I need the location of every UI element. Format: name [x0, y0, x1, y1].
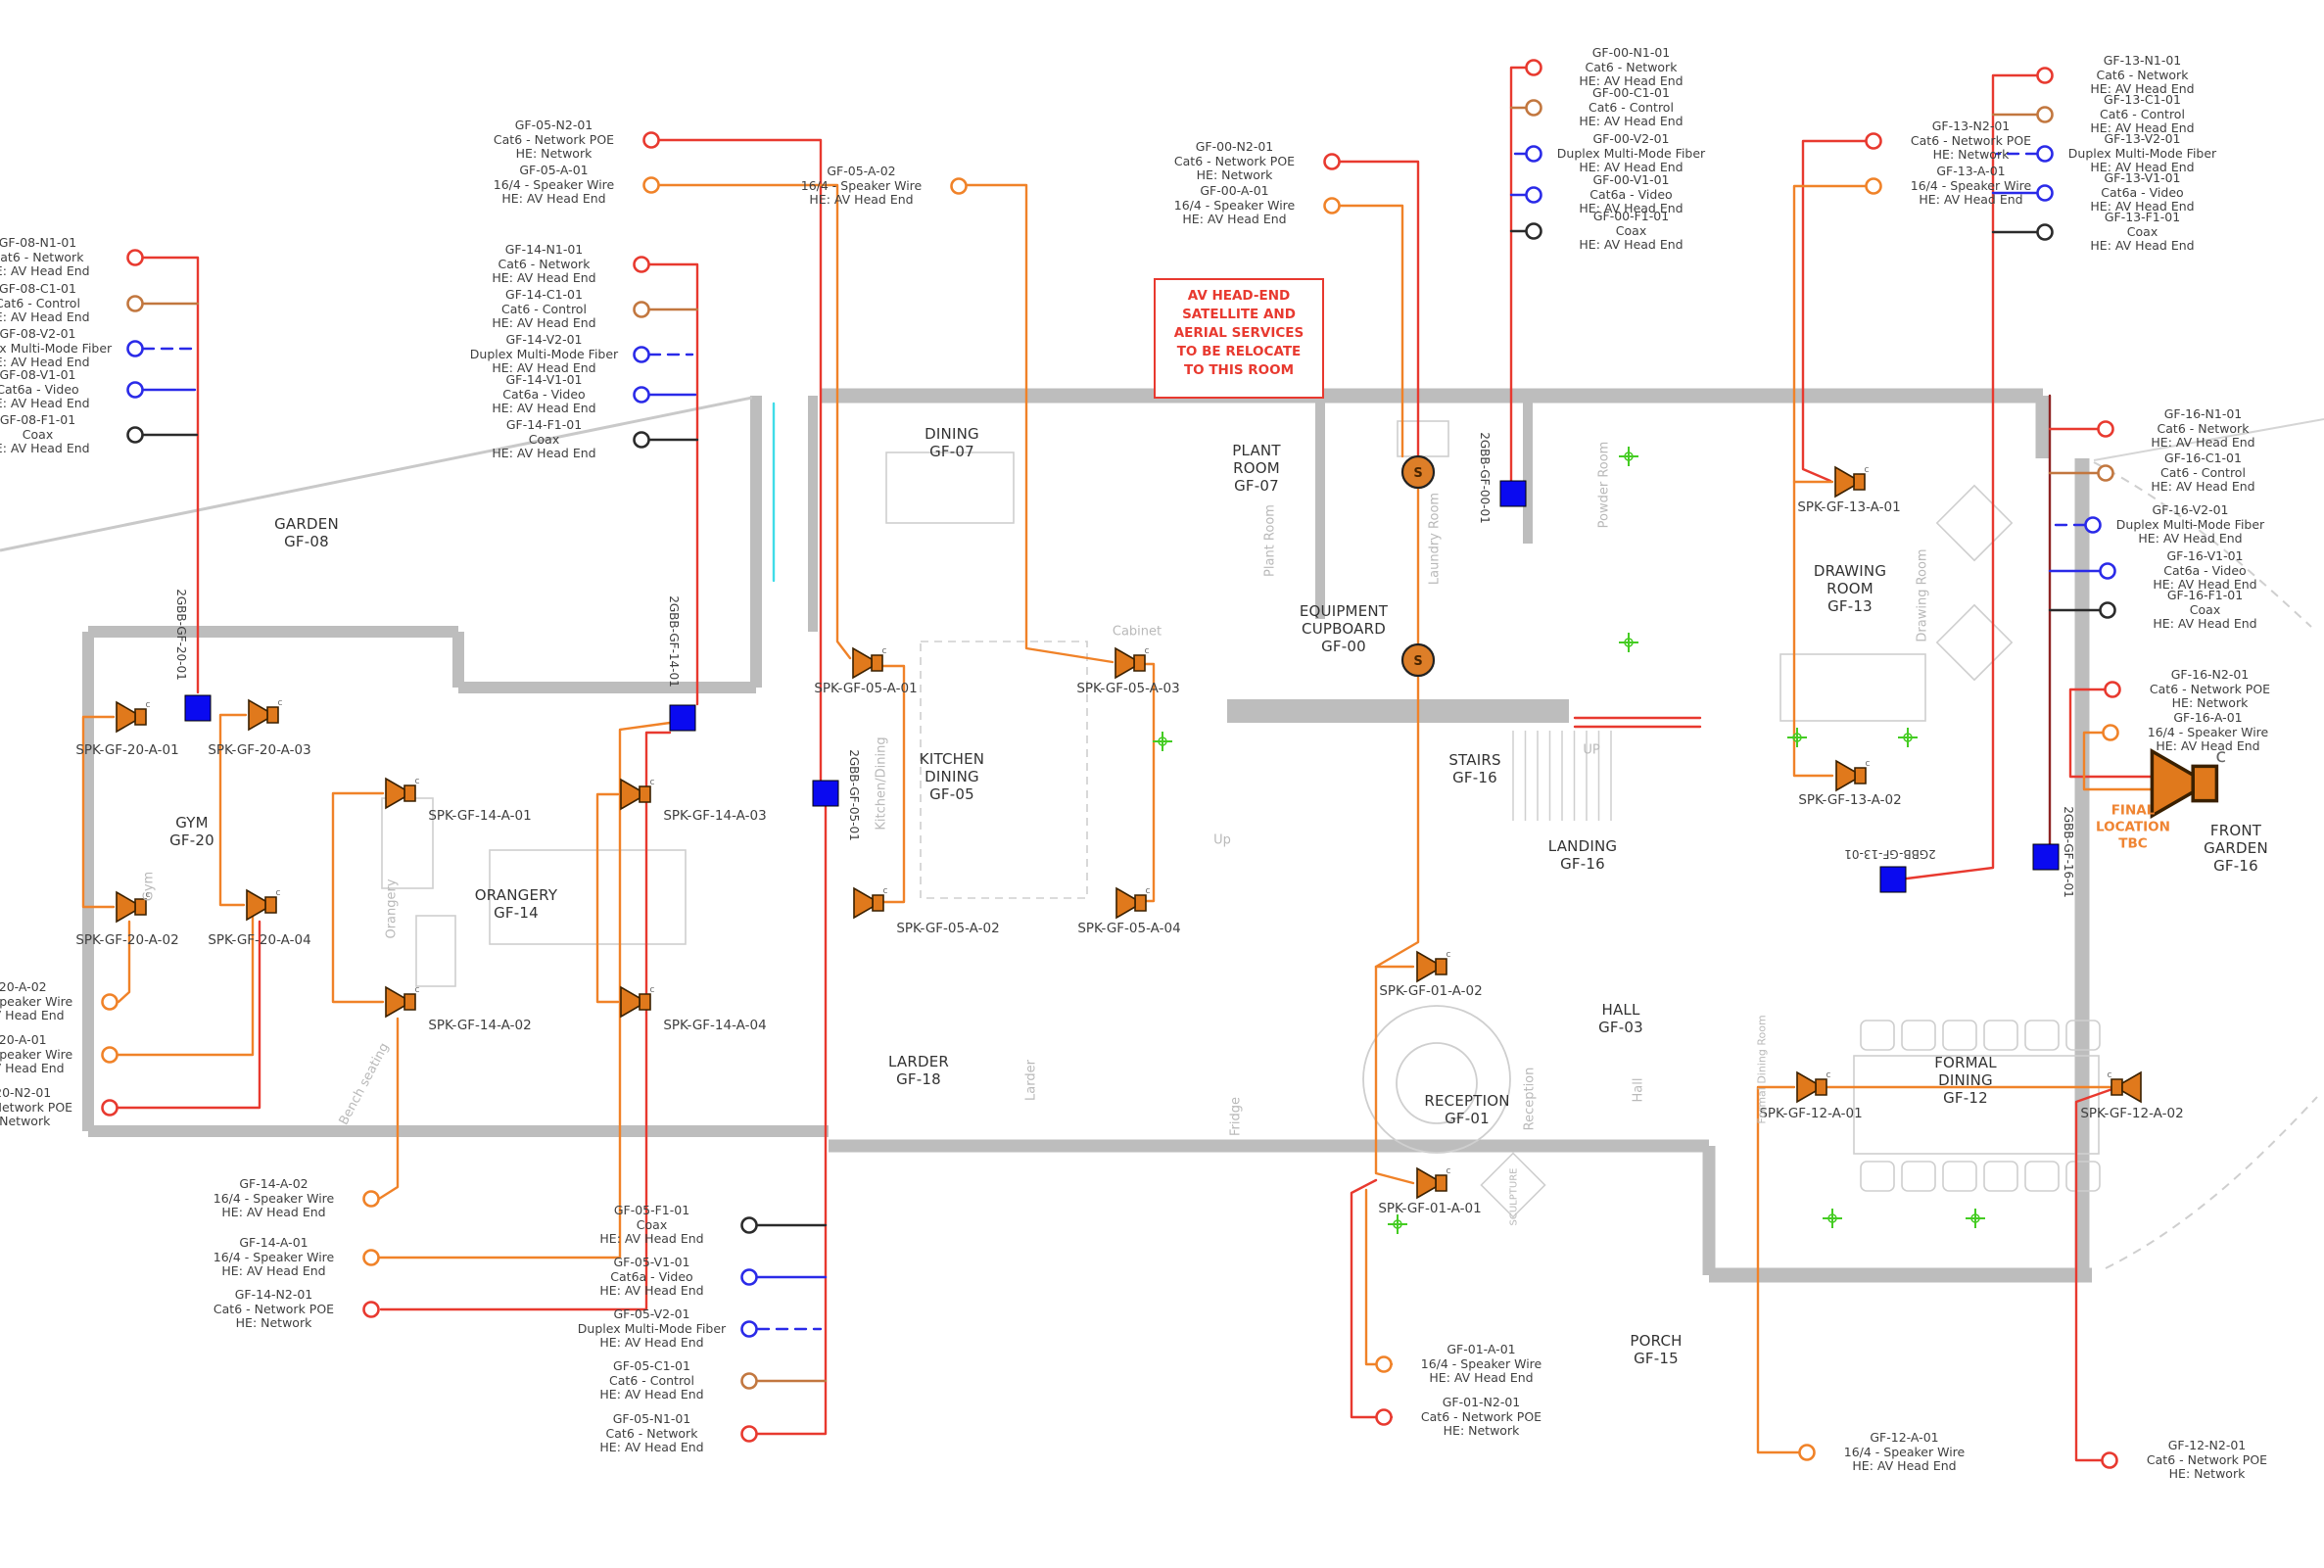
speaker-label: SPK-GF-14-A-02	[428, 1018, 531, 1033]
cable-label-dest: HE: AV Head End	[458, 271, 630, 286]
cable-label: GF-00-N1-01Cat6 - NetworkHE: AV Head End	[1545, 46, 1717, 89]
cable-label-id: GF-00-V2-01	[1545, 132, 1717, 147]
cable-label-type: Duplex Multi-Mode Fiber	[458, 348, 630, 362]
cable-label-type: Duplex Multi-Mode Fiber	[566, 1322, 737, 1337]
room-label-line: FRONT	[2153, 822, 2319, 839]
panel-label: 2GBB-GF-05-01	[847, 749, 861, 841]
cable-label-dest: HE: AV Head End	[1149, 213, 1320, 227]
cable-label-dest: HE: AV Head End	[0, 1009, 98, 1023]
cable-label-type: Duplex Multi-Mode Fiber	[0, 342, 123, 356]
cable-label-id: GF-00-F1-01	[1545, 210, 1717, 224]
room-label-line: DINING	[869, 768, 1035, 785]
plan-text: Laundry Room	[1428, 493, 1443, 585]
relocation-note-line: TO THIS ROOM	[1156, 361, 1322, 380]
cable-label-type: Cat6 - Network	[0, 251, 123, 265]
room-label-line: GF-13	[1767, 597, 1933, 615]
cable-label: GF-05-V2-01Duplex Multi-Mode FiberHE: AV…	[566, 1307, 737, 1351]
cable-label-type: 16/4 - Speaker Wire	[1396, 1357, 1567, 1372]
cable-label-id: GF-13-F1-01	[2057, 211, 2228, 225]
cable-label-dest: HE: AV Head End	[1819, 1459, 1990, 1474]
cable-label: GF-16-V1-01Cat6a - VideoHE: AV Head End	[2119, 549, 2291, 593]
room-label: ORANGERYGF-14	[433, 886, 599, 922]
cable-label-id: GF-05-A-02	[776, 165, 947, 179]
room-label-line: CUPBOARD	[1260, 620, 1427, 638]
speaker-label: SPK-GF-14-A-01	[428, 808, 531, 824]
cable-label-type: Cat6 - Network POE	[0, 1101, 98, 1116]
cable-label: GF-05-N2-01Cat6 - Network POEHE: Network	[468, 119, 640, 162]
room-label-line: DRAWING	[1767, 562, 1933, 580]
room-label-line: GF-18	[835, 1070, 1002, 1088]
room-label-line: GF-00	[1260, 638, 1427, 655]
cable-label-type: Cat6 - Network POE	[2124, 683, 2296, 697]
cable-label: GF-16-C1-01Cat6 - ControlHE: AV Head End	[2117, 451, 2289, 495]
speaker-label: SPK-GF-20-A-02	[75, 932, 178, 948]
cable-label-type: 16/4 - Speaker Wire	[188, 1251, 359, 1265]
cable-label: GF-05-F1-01CoaxHE: AV Head End	[566, 1204, 737, 1247]
cable-label-dest: HE: AV Head End	[566, 1441, 737, 1455]
cable-label-dest: HE: AV Head End	[1885, 193, 2057, 208]
cable-label-type: Cat6 - Control	[2117, 466, 2289, 481]
cable-label-id: GF-14-V2-01	[458, 333, 630, 348]
plan-text: Hall	[1632, 1078, 1646, 1103]
plan-text: SCULPTURE	[1509, 1168, 1520, 1226]
cable-label-type: Cat6 - Network POE	[2121, 1453, 2293, 1468]
room-label-line: GF-05	[869, 785, 1035, 803]
plan-text: Formal Dining Room	[1756, 1015, 1769, 1123]
cable-label: GF-13-N2-01Cat6 - Network POEHE: Network	[1885, 119, 2057, 163]
cable-label-dest: HE: AV Head End	[458, 402, 630, 416]
cable-label: GF-16-N2-01Cat6 - Network POEHE: Network	[2124, 668, 2296, 711]
cable-label-dest: HE: AV Head End	[2117, 480, 2289, 495]
cable-label: GF-16-N1-01Cat6 - NetworkHE: AV Head End	[2117, 407, 2289, 451]
cable-label-type: 16/4 - Speaker Wire	[2122, 726, 2294, 740]
room-label: LANDINGGF-16	[1499, 837, 1666, 873]
cable-label-id: GF-20-A-01	[0, 1033, 98, 1048]
cable-label: GF-14-A-0216/4 - Speaker WireHE: AV Head…	[188, 1177, 359, 1220]
cable-label-dest: HE: AV Head End	[0, 264, 123, 279]
room-label-line: GF-07	[1173, 477, 1340, 495]
cable-label-type: Cat6 - Control	[458, 303, 630, 317]
room-label: STAIRSGF-16	[1392, 751, 1558, 786]
cable-label-id: GF-01-N2-01	[1396, 1396, 1567, 1410]
panel-label: 2GBB-GF-16-01	[2062, 806, 2075, 898]
room-label: FORMALDININGGF-12	[1882, 1054, 2049, 1107]
cable-label: GF-14-C1-01Cat6 - ControlHE: AV Head End	[458, 288, 630, 331]
speaker-label: SPK-GF-20-A-01	[75, 742, 178, 758]
panel-label: 2GBB-GF-00-01	[1478, 432, 1492, 524]
panel-label: 2GBB-GF-14-01	[667, 595, 681, 688]
cable-label-id: GF-05-V2-01	[566, 1307, 737, 1322]
final-location-line: FINAL	[2096, 803, 2170, 820]
cable-label-dest: HE: AV Head End	[1545, 238, 1717, 253]
room-label-line: GYM	[109, 814, 275, 832]
cable-label-type: Cat6 - Control	[0, 297, 123, 311]
cable-label-id: GF-05-A-01	[468, 164, 640, 178]
cable-label-dest: HE: AV Head End	[0, 310, 123, 325]
speaker-label: SPK-GF-01-A-01	[1378, 1201, 1481, 1216]
room-label: GARDENGF-08	[223, 515, 390, 550]
cable-label: GF-08-N1-01Cat6 - NetworkHE: AV Head End	[0, 236, 123, 279]
cable-label-id: GF-13-V2-01	[2057, 132, 2228, 147]
room-label-line: PLANT	[1173, 442, 1340, 459]
cable-label: GF-14-V2-01Duplex Multi-Mode FiberHE: AV…	[458, 333, 630, 376]
cable-label: GF-13-N1-01Cat6 - NetworkHE: AV Head End	[2057, 54, 2228, 97]
plan-text: Plant Room	[1263, 504, 1278, 577]
panel-label: 2GBB-GF-20-01	[174, 589, 188, 681]
cable-label-dest: HE: AV Head End	[2105, 532, 2276, 546]
cable-label-id: GF-08-F1-01	[0, 413, 123, 428]
cable-label: GF-13-C1-01Cat6 - ControlHE: AV Head End	[2057, 93, 2228, 136]
speaker-label: SPK-GF-12-A-01	[1759, 1106, 1862, 1121]
cable-label-dest: HE: AV Head End	[566, 1232, 737, 1247]
cable-label-type: Cat6 - Network POE	[1149, 155, 1320, 169]
cable-label-type: Cat6a - Video	[458, 388, 630, 403]
room-label-line: GF-16	[1499, 855, 1666, 873]
cable-label-dest: HE: AV Head End	[0, 442, 123, 456]
cable-label-id: GF-16-N2-01	[2124, 668, 2296, 683]
room-label-line: GARDEN	[223, 515, 390, 533]
room-label-line: KITCHEN	[869, 750, 1035, 768]
room-label: DININGGF-07	[869, 425, 1035, 460]
plan-text: Kitchen/Dining	[875, 736, 889, 830]
cable-label-type: Cat6 - Control	[566, 1374, 737, 1389]
cable-label: GF-13-V1-01Cat6a - VideoHE: AV Head End	[2057, 171, 2228, 214]
cable-label-id: GF-00-V1-01	[1545, 173, 1717, 188]
cable-label-dest: HE: AV Head End	[468, 192, 640, 207]
speaker-label: SPK-GF-13-A-01	[1797, 499, 1900, 515]
cable-label-type: 16/4 - Speaker Wire	[1819, 1446, 1990, 1460]
cable-label: GF-05-A-0216/4 - Speaker WireHE: AV Head…	[776, 165, 947, 208]
cable-label-id: GF-12-N2-01	[2121, 1439, 2293, 1453]
cable-label-dest: HE: AV Head End	[458, 316, 630, 331]
cable-label-type: Cat6a - Video	[1545, 188, 1717, 203]
cable-label-id: GF-16-C1-01	[2117, 451, 2289, 466]
cable-label: GF-16-A-0116/4 - Speaker WireHE: AV Head…	[2122, 711, 2294, 754]
room-label-line: GF-20	[109, 832, 275, 849]
room-label-line: DINING	[869, 425, 1035, 443]
cable-label-id: GF-00-C1-01	[1545, 86, 1717, 101]
cable-label: GF-08-V2-01Duplex Multi-Mode FiberHE: AV…	[0, 327, 123, 370]
room-label-line: ROOM	[1173, 459, 1340, 477]
final-location-line: LOCATION	[2096, 820, 2170, 836]
cable-label: GF-00-N2-01Cat6 - Network POEHE: Network	[1149, 140, 1320, 183]
room-label: DRAWINGROOMGF-13	[1767, 562, 1933, 615]
cable-label-dest: HE: Network	[468, 147, 640, 162]
cable-label-type: Coax	[2057, 225, 2228, 240]
room-label: GYMGF-20	[109, 814, 275, 849]
cable-label-id: GF-08-V1-01	[0, 368, 123, 383]
cable-label-type: Cat6 - Control	[2057, 108, 2228, 122]
cable-label-type: Cat6a - Video	[566, 1270, 737, 1285]
room-label-line: HALL	[1538, 1001, 1704, 1019]
cable-label-type: 16/4 - Speaker Wire	[468, 178, 640, 193]
cable-label-dest: HE: Network	[2124, 696, 2296, 711]
cable-label: GF-05-V1-01Cat6a - VideoHE: AV Head End	[566, 1256, 737, 1299]
room-label-line: LANDING	[1499, 837, 1666, 855]
label-overlay: GF-08-N1-01Cat6 - NetworkHE: AV Head End…	[0, 0, 2324, 1568]
panel-label: 2GBB-GF-13-01	[1844, 847, 1936, 861]
cable-label-dest: HE: Network	[188, 1316, 359, 1331]
cable-label-type: Coax	[458, 433, 630, 448]
cable-label-type: Cat6 - Network POE	[1885, 134, 2057, 149]
cable-label-id: GF-13-A-01	[1885, 165, 2057, 179]
cable-label: GF-20-A-0116/4 - Speaker WireHE: AV Head…	[0, 1033, 98, 1076]
cable-label-id: GF-20-A-02	[0, 980, 98, 995]
cable-label: GF-14-N2-01Cat6 - Network POEHE: Network	[188, 1288, 359, 1331]
cable-label: GF-20-A-0216/4 - Speaker WireHE: AV Head…	[0, 980, 98, 1023]
room-label-line: STAIRS	[1392, 751, 1558, 769]
room-label: KITCHENDININGGF-05	[869, 750, 1035, 803]
room-label-line: GARDEN	[2153, 839, 2319, 857]
cable-label-type: Cat6a - Video	[0, 383, 123, 398]
cable-label-id: GF-08-C1-01	[0, 282, 123, 297]
cable-label-id: GF-14-N2-01	[188, 1288, 359, 1303]
speaker-label: SPK-GF-13-A-02	[1798, 792, 1901, 808]
cable-label-id: GF-01-A-01	[1396, 1343, 1567, 1357]
cable-label-dest: HE: AV Head End	[2122, 739, 2294, 754]
cable-label-type: Duplex Multi-Mode Fiber	[2105, 518, 2276, 533]
cable-label-type: Coax	[566, 1218, 737, 1233]
cable-label-id: GF-00-A-01	[1149, 184, 1320, 199]
cable-label-id: GF-16-V1-01	[2119, 549, 2291, 564]
plan-text: Up	[1213, 833, 1231, 848]
cable-label: GF-05-N1-01Cat6 - NetworkHE: AV Head End	[566, 1412, 737, 1455]
relocation-note-line: SATELLITE AND	[1156, 306, 1322, 324]
room-label-line: GF-14	[433, 904, 599, 922]
cable-label: GF-00-V2-01Duplex Multi-Mode FiberHE: AV…	[1545, 132, 1717, 175]
room-label: LARDERGF-18	[835, 1053, 1002, 1088]
cable-label-id: GF-14-F1-01	[458, 418, 630, 433]
speaker-label: SPK-GF-05-A-03	[1076, 681, 1179, 696]
cable-label-id: GF-13-N1-01	[2057, 54, 2228, 69]
room-label: EQUIPMENTCUPBOARDGF-00	[1260, 602, 1427, 655]
plan-text: UP	[1583, 743, 1599, 758]
cable-label-dest: HE: AV Head End	[566, 1388, 737, 1402]
cable-label-dest: HE: Network	[1885, 148, 2057, 163]
cable-label-id: GF-05-V1-01	[566, 1256, 737, 1270]
plan-text: Larder	[1024, 1060, 1039, 1101]
cable-label-type: Cat6 - Network	[566, 1427, 737, 1442]
cable-label-dest: HE: AV Head End	[458, 447, 630, 461]
cable-label-dest: HE: AV Head End	[2057, 239, 2228, 254]
relocation-note-line: TO BE RELOCATE	[1156, 343, 1322, 361]
cable-label-type: Cat6 - Network POE	[188, 1303, 359, 1317]
relocation-note: AV HEAD-ENDSATELLITE ANDAERIAL SERVICEST…	[1154, 278, 1324, 399]
cable-label-id: GF-14-A-02	[188, 1177, 359, 1192]
cable-label-id: GF-14-V1-01	[458, 373, 630, 388]
room-label-line: LARDER	[835, 1053, 1002, 1070]
room-label-line: DINING	[1882, 1071, 2049, 1089]
cable-label-type: 16/4 - Speaker Wire	[1885, 179, 2057, 194]
cable-label-dest: HE: AV Head End	[188, 1264, 359, 1279]
cable-label-type: Coax	[1545, 224, 1717, 239]
cable-label-type: Cat6a - Video	[2119, 564, 2291, 579]
final-location-line: TBC	[2096, 836, 2170, 853]
speaker-label: SPK-GF-14-A-04	[663, 1018, 766, 1033]
cable-label-type: Cat6a - Video	[2057, 186, 2228, 201]
cable-label: GF-01-A-0116/4 - Speaker WireHE: AV Head…	[1396, 1343, 1567, 1386]
cable-label-dest: HE: Network	[2121, 1467, 2293, 1482]
speaker-label: SPK-GF-20-A-04	[208, 932, 310, 948]
speaker-label: SPK-GF-05-A-01	[814, 681, 917, 696]
cable-label: GF-14-F1-01CoaxHE: AV Head End	[458, 418, 630, 461]
cable-label: GF-01-N2-01Cat6 - Network POEHE: Network	[1396, 1396, 1567, 1439]
cable-label-id: GF-14-N1-01	[458, 243, 630, 258]
speaker-label: SPK-GF-05-A-04	[1077, 921, 1180, 936]
room-label-line: GF-12	[1882, 1089, 2049, 1107]
cable-label-dest: HE: AV Head End	[776, 193, 947, 208]
cable-label-type: 16/4 - Speaker Wire	[0, 995, 98, 1010]
relocation-note-line: AERIAL SERVICES	[1156, 324, 1322, 343]
cable-label: GF-16-V2-01Duplex Multi-Mode FiberHE: AV…	[2105, 503, 2276, 546]
cable-label-id: GF-05-F1-01	[566, 1204, 737, 1218]
cable-label: GF-16-F1-01CoaxHE: AV Head End	[2119, 589, 2291, 632]
cable-label: GF-14-V1-01Cat6a - VideoHE: AV Head End	[458, 373, 630, 416]
cable-label-id: GF-08-V2-01	[0, 327, 123, 342]
cable-label: GF-13-F1-01CoaxHE: AV Head End	[2057, 211, 2228, 254]
cable-label-type: Duplex Multi-Mode Fiber	[1545, 147, 1717, 162]
room-label: FRONTGARDENGF-16	[2153, 822, 2319, 875]
cable-label-dest: HE: AV Head End	[0, 1062, 98, 1076]
cable-label-id: GF-14-A-01	[188, 1236, 359, 1251]
cable-label-dest: HE: Network	[1396, 1424, 1567, 1439]
speaker-label: SPK-GF-01-A-02	[1379, 983, 1482, 999]
speaker-label: SPK-GF-05-A-02	[896, 921, 999, 936]
final-location-note: FINALLOCATIONTBC	[2096, 803, 2170, 853]
plan-text: Powder Room	[1597, 442, 1612, 529]
cable-label-id: GF-05-N1-01	[566, 1412, 737, 1427]
cable-label-type: Cat6 - Network	[1545, 61, 1717, 75]
cable-label-id: GF-05-N2-01	[468, 119, 640, 133]
cable-label-dest: HE: AV Head End	[566, 1284, 737, 1299]
room-label-line: GF-15	[1573, 1350, 1739, 1367]
cable-label-type: 16/4 - Speaker Wire	[1149, 199, 1320, 214]
cable-label-dest: HE: Network	[1149, 168, 1320, 183]
cable-label-id: GF-16-N1-01	[2117, 407, 2289, 422]
cable-label-id: GF-20-N2-01	[0, 1086, 98, 1101]
relocation-note-line: AV HEAD-END	[1156, 287, 1322, 306]
cable-label: GF-08-V1-01Cat6a - VideoHE: AV Head End	[0, 368, 123, 411]
cable-label-type: Cat6 - Control	[1545, 101, 1717, 116]
plan-text: Cabinet	[1113, 625, 1162, 640]
cable-label-id: GF-16-A-01	[2122, 711, 2294, 726]
cable-label: GF-08-F1-01CoaxHE: AV Head End	[0, 413, 123, 456]
cable-label-type: Cat6 - Network POE	[1396, 1410, 1567, 1425]
room-label: PLANTROOMGF-07	[1173, 442, 1340, 495]
cable-label-id: GF-05-C1-01	[566, 1359, 737, 1374]
cable-label-dest: HE: AV Head End	[0, 397, 123, 411]
cable-label-id: GF-12-A-01	[1819, 1431, 1990, 1446]
cable-label: GF-00-A-0116/4 - Speaker WireHE: AV Head…	[1149, 184, 1320, 227]
cable-label-dest: HE: Network	[0, 1115, 98, 1129]
cable-label-id: GF-16-V2-01	[2105, 503, 2276, 518]
cable-label-dest: HE: AV Head End	[1396, 1371, 1567, 1386]
speaker-label: SPK-GF-14-A-03	[663, 808, 766, 824]
room-label-line: GF-16	[2153, 857, 2319, 875]
cable-label: GF-13-A-0116/4 - Speaker WireHE: AV Head…	[1885, 165, 2057, 208]
room-label-line: ORANGERY	[433, 886, 599, 904]
cable-label-type: 16/4 - Speaker Wire	[0, 1048, 98, 1063]
cable-label-id: GF-13-N2-01	[1885, 119, 2057, 134]
cable-label-type: Duplex Multi-Mode Fiber	[2057, 147, 2228, 162]
cable-label: GF-05-A-0116/4 - Speaker WireHE: AV Head…	[468, 164, 640, 207]
cable-label-id: GF-13-V1-01	[2057, 171, 2228, 186]
room-label: PORCHGF-15	[1573, 1332, 1739, 1367]
floor-plan-canvas: SSccccccccccccccccccc GF-08-N1-01Cat6 - …	[0, 0, 2324, 1568]
room-label-line: EQUIPMENT	[1260, 602, 1427, 620]
room-label-line: GF-07	[869, 443, 1035, 460]
cable-label-id: GF-14-C1-01	[458, 288, 630, 303]
room-label-line: FORMAL	[1882, 1054, 2049, 1071]
room-label-line: GF-03	[1538, 1019, 1704, 1036]
cable-label-id: GF-16-F1-01	[2119, 589, 2291, 603]
cable-label: GF-14-A-0116/4 - Speaker WireHE: AV Head…	[188, 1236, 359, 1279]
speaker-label: SPK-GF-20-A-03	[208, 742, 310, 758]
cable-label-dest: HE: AV Head End	[188, 1206, 359, 1220]
cable-label-type: Cat6 - Network	[2117, 422, 2289, 437]
cable-label-type: Coax	[2119, 603, 2291, 618]
cable-label-type: Cat6 - Network	[2057, 69, 2228, 83]
room-label-line: GF-08	[223, 533, 390, 550]
cable-label-type: Cat6 - Network POE	[468, 133, 640, 148]
cable-label-type: Coax	[0, 428, 123, 443]
plan-text: Gym	[142, 872, 157, 901]
cable-label: GF-00-C1-01Cat6 - ControlHE: AV Head End	[1545, 86, 1717, 129]
cable-label: GF-12-A-0116/4 - Speaker WireHE: AV Head…	[1819, 1431, 1990, 1474]
room-label-line: GF-16	[1392, 769, 1558, 786]
plan-text: Reception	[1523, 1068, 1538, 1131]
cable-label-dest: HE: AV Head End	[2117, 436, 2289, 451]
cable-label-dest: HE: AV Head End	[1545, 115, 1717, 129]
plan-text: Drawing Room	[1916, 548, 1930, 641]
room-label: HALLGF-03	[1538, 1001, 1704, 1036]
cable-label-type: 16/4 - Speaker Wire	[188, 1192, 359, 1207]
cable-label: GF-20-N2-01Cat6 - Network POEHE: Network	[0, 1086, 98, 1129]
plan-text: Orangery	[385, 879, 400, 938]
speaker-label: SPK-GF-12-A-02	[2080, 1106, 2183, 1121]
cable-label-id: GF-08-N1-01	[0, 236, 123, 251]
cable-label: GF-14-N1-01Cat6 - NetworkHE: AV Head End	[458, 243, 630, 286]
plan-text: Fridge	[1229, 1097, 1244, 1136]
room-label-line: PORCH	[1573, 1332, 1739, 1350]
cable-label-dest: HE: AV Head End	[566, 1336, 737, 1351]
cable-label-id: GF-00-N1-01	[1545, 46, 1717, 61]
cable-label-id: GF-13-C1-01	[2057, 93, 2228, 108]
cable-label: GF-13-V2-01Duplex Multi-Mode FiberHE: AV…	[2057, 132, 2228, 175]
cable-label: GF-05-C1-01Cat6 - ControlHE: AV Head End	[566, 1359, 737, 1402]
cable-label-type: Cat6 - Network	[458, 258, 630, 272]
cable-label: GF-12-N2-01Cat6 - Network POEHE: Network	[2121, 1439, 2293, 1482]
cable-label: GF-00-F1-01CoaxHE: AV Head End	[1545, 210, 1717, 253]
cable-label-dest: HE: AV Head End	[2119, 617, 2291, 632]
cable-label-id: GF-00-N2-01	[1149, 140, 1320, 155]
plan-text: Bench seating	[337, 1041, 393, 1128]
room-label-line: ROOM	[1767, 580, 1933, 597]
cable-label-type: 16/4 - Speaker Wire	[776, 179, 947, 194]
cable-label: GF-08-C1-01Cat6 - ControlHE: AV Head End	[0, 282, 123, 325]
